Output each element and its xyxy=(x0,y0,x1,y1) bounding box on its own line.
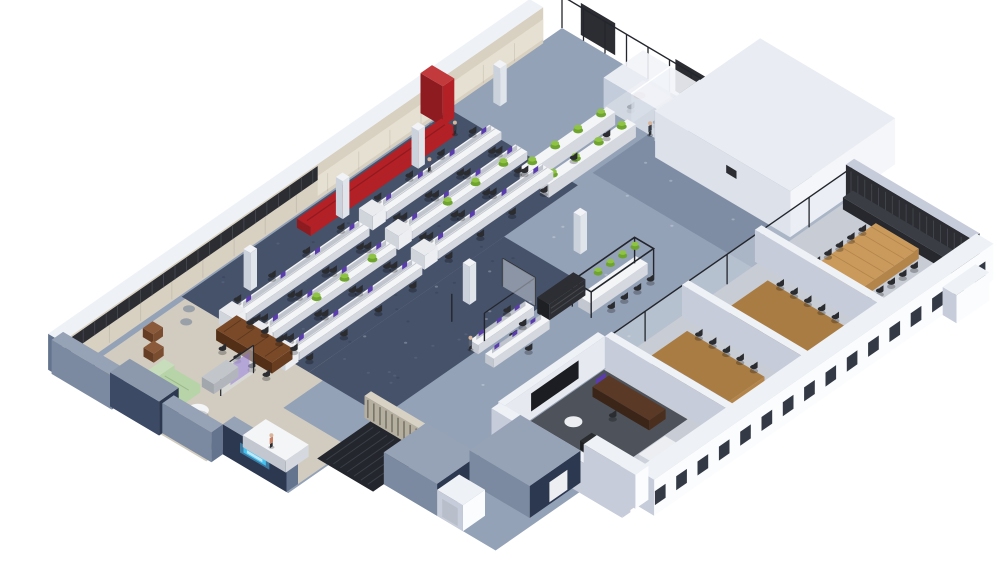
dining-chair-shadow xyxy=(262,376,270,381)
carpet-speckle xyxy=(431,345,434,347)
task-chair-shadow xyxy=(457,217,465,222)
task-chair-shadow xyxy=(437,155,445,160)
task-chair-shadow xyxy=(337,229,345,234)
carpet-speckle xyxy=(343,358,346,360)
boardroom-chair-shadow xyxy=(910,268,918,273)
counter-planter xyxy=(551,141,559,146)
meeting-chair-shadow xyxy=(750,369,758,374)
task-chair-shadow xyxy=(494,153,502,158)
walkway-speckle xyxy=(561,226,564,228)
carpet-speckle xyxy=(347,222,350,224)
meeting-chair-shadow xyxy=(722,352,730,357)
worker-walking-head xyxy=(469,336,473,340)
task-chair-shadow xyxy=(476,236,484,241)
carpet-speckle xyxy=(393,375,396,377)
carpet-speckle xyxy=(394,294,397,296)
counter-planter xyxy=(574,125,582,130)
stool-shadow xyxy=(570,159,578,164)
walkway-speckle xyxy=(488,270,491,272)
dining-chair-shadow xyxy=(218,350,226,355)
meeting-chair-shadow xyxy=(804,302,812,307)
column xyxy=(412,127,419,169)
meeting-chair-shadow xyxy=(776,286,784,291)
carpet-speckle xyxy=(367,372,370,374)
column xyxy=(244,249,251,291)
meeting-chair-shadow xyxy=(695,336,703,341)
carpet-speckle xyxy=(429,123,432,125)
task-chair-shadow xyxy=(468,133,476,138)
boardroom-chair-shadow xyxy=(835,247,843,252)
boardroom-chair-shadow xyxy=(858,231,866,236)
carpet-speckle xyxy=(277,243,280,245)
column xyxy=(250,249,257,292)
carpet-speckle xyxy=(414,357,417,359)
task-chair-shadow xyxy=(287,297,295,302)
task-chair-shadow xyxy=(445,258,453,263)
floorplan-graphics xyxy=(48,0,994,551)
boardroom-chair-shadow xyxy=(824,255,832,260)
column xyxy=(493,64,500,106)
dining-chair-shadow xyxy=(275,342,283,347)
stool-shadow xyxy=(602,137,610,142)
column xyxy=(463,263,470,305)
task-chair-shadow xyxy=(321,273,329,278)
task-chair-shadow xyxy=(524,350,532,355)
canopy-plant xyxy=(631,242,638,247)
carpet-speckle xyxy=(437,225,440,227)
task-chair-shadow xyxy=(329,272,337,277)
task-chair-shadow xyxy=(405,177,413,182)
dining-chair-shadow xyxy=(246,324,254,329)
pouf xyxy=(180,318,192,325)
desk-planter xyxy=(444,197,452,202)
task-chair-shadow xyxy=(540,192,548,197)
counter-planter xyxy=(597,109,605,114)
column xyxy=(418,126,425,169)
walkway-speckle xyxy=(626,195,629,197)
task-chair-shadow xyxy=(518,326,526,331)
task-chair-shadow xyxy=(463,175,471,180)
desk-planter xyxy=(313,293,321,298)
render-canvas xyxy=(0,0,1000,563)
counter-planter xyxy=(528,157,536,162)
desk-planter xyxy=(368,254,376,259)
carpet-speckle xyxy=(348,341,351,343)
task-chair-shadow xyxy=(431,197,439,202)
carpet-speckle xyxy=(491,260,494,262)
boardroom-chair-shadow xyxy=(847,239,855,244)
column xyxy=(470,262,477,305)
carpet-speckle xyxy=(435,292,438,294)
desk-planter xyxy=(341,273,349,278)
walkway-speckle xyxy=(644,162,647,164)
red-feature-wall xyxy=(443,78,455,126)
desk-planter xyxy=(472,178,480,183)
meeting-chair-shadow xyxy=(790,294,798,299)
dining-chair-shadow xyxy=(261,333,269,338)
task-chair-shadow xyxy=(409,288,417,293)
carpet-speckle xyxy=(395,308,398,310)
carpet-speckle xyxy=(396,377,399,379)
task-chair-shadow xyxy=(489,194,497,199)
walkway-speckle xyxy=(552,236,555,238)
carpet-speckle xyxy=(511,257,514,259)
office-worker-head xyxy=(453,121,457,125)
meeting-chair-shadow xyxy=(708,344,716,349)
task-chair-shadow xyxy=(503,312,511,317)
bar-stool-shadow xyxy=(633,290,641,295)
worker-standing-head xyxy=(648,121,652,125)
task-chair-shadow xyxy=(508,214,516,219)
task-chair-shadow xyxy=(295,296,303,301)
worker-near-banquette-head xyxy=(427,157,431,161)
counter-planter xyxy=(595,137,603,142)
meeting-chair-shadow xyxy=(736,360,744,365)
carpet-speckle xyxy=(389,382,392,384)
column xyxy=(574,212,581,254)
counter-planter xyxy=(618,121,626,126)
walkway-speckle xyxy=(669,180,672,182)
dining-chair-shadow xyxy=(290,350,298,355)
canopy-plant xyxy=(619,250,626,255)
task-chair-shadow xyxy=(305,360,313,365)
column xyxy=(500,64,507,107)
carpet-speckle xyxy=(480,246,483,248)
task-chair-shadow xyxy=(356,249,364,254)
walkway-speckle xyxy=(732,218,735,220)
task-chair-shadow xyxy=(520,172,528,177)
task-chair-shadow xyxy=(320,316,328,321)
task-chair-shadow xyxy=(340,336,348,341)
exec-side-table xyxy=(564,416,582,427)
boardroom-chair-shadow xyxy=(887,284,895,289)
walkway-speckle xyxy=(485,318,488,320)
column xyxy=(336,177,343,219)
carpet-speckle xyxy=(453,282,456,284)
walkway-speckle xyxy=(670,225,673,227)
walkway-speckle xyxy=(604,274,607,276)
task-chair-shadow xyxy=(363,248,371,253)
task-chair-shadow xyxy=(374,312,382,317)
task-chair-shadow xyxy=(268,277,276,282)
carpet-speckle xyxy=(221,281,224,283)
meeting-chair-shadow xyxy=(817,311,825,316)
canopy-plant xyxy=(607,259,614,264)
pouf xyxy=(183,305,195,312)
canopy-plant xyxy=(595,267,602,272)
carpet-speckle xyxy=(388,371,391,373)
carpet-speckle xyxy=(464,333,467,335)
carpet-speckle xyxy=(222,276,225,278)
task-chair-shadow xyxy=(389,268,397,273)
bar-stool-shadow xyxy=(646,281,654,286)
task-chair-shadow xyxy=(355,292,363,297)
carpet-speckle xyxy=(458,339,461,341)
column xyxy=(581,212,588,255)
column xyxy=(343,177,350,220)
walkway-speckle xyxy=(435,286,438,288)
meeting-chair-shadow xyxy=(831,319,839,324)
bar-stool-shadow xyxy=(607,308,615,313)
carpet-speckle xyxy=(406,320,409,322)
carpet-speckle xyxy=(312,241,315,243)
walkway-speckle xyxy=(363,335,366,337)
walkway-speckle xyxy=(481,384,484,386)
office-floorplan-render xyxy=(0,0,1000,563)
boardroom-chair-shadow xyxy=(899,276,907,281)
walkway-speckle xyxy=(404,342,407,344)
desk-planter xyxy=(499,158,507,163)
bar-stool-shadow xyxy=(620,299,628,304)
exec-chair-shadow xyxy=(609,417,617,422)
receptionist-head xyxy=(269,433,273,437)
carpet-speckle xyxy=(302,328,305,330)
task-chair-shadow xyxy=(302,253,310,258)
